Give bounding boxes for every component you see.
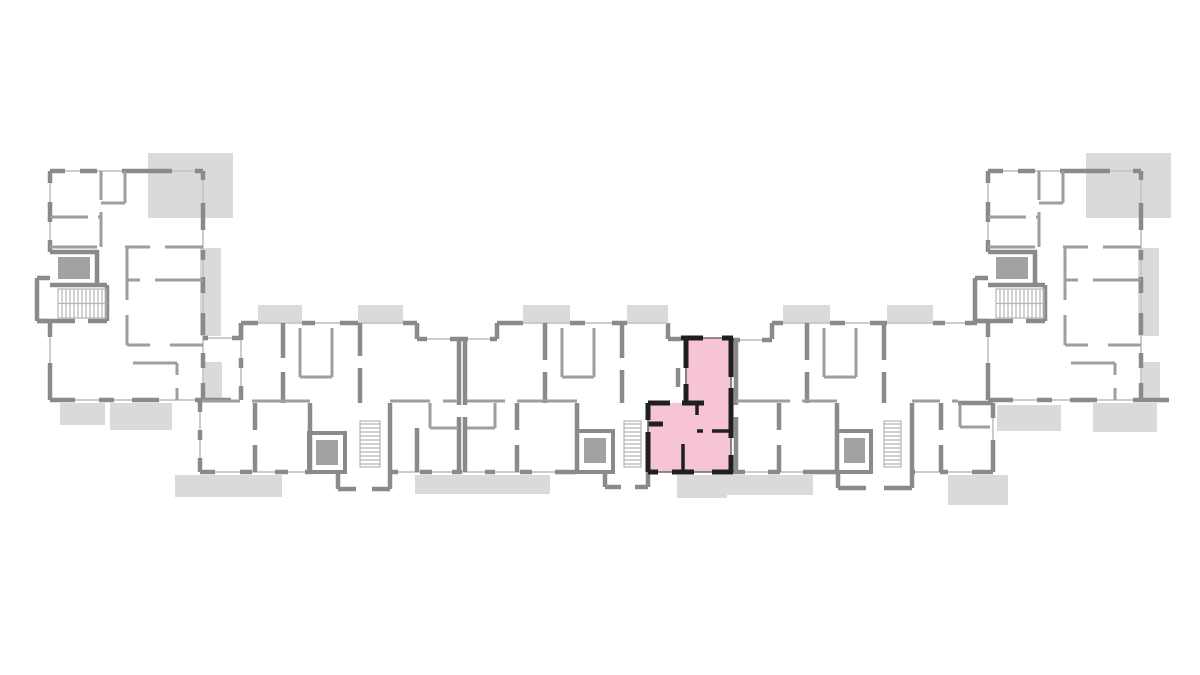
balcony <box>887 305 933 323</box>
highlighted-unit[interactable] <box>648 338 733 472</box>
stairs-icon <box>884 421 901 467</box>
terrace-highlighted-unit <box>677 475 727 498</box>
central-bar <box>200 323 993 489</box>
balcony <box>258 305 302 323</box>
bar-top-walls <box>241 323 977 340</box>
stair-core-right <box>837 421 912 488</box>
entrance-porch-walls <box>338 472 390 489</box>
terrace <box>727 475 813 495</box>
balcony <box>523 305 570 323</box>
floor-plan-page <box>0 0 1200 675</box>
entrance-porch-walls <box>605 472 648 487</box>
right-wing <box>975 153 1171 400</box>
terrace <box>948 475 1008 505</box>
elevator-icon <box>315 439 339 466</box>
terrace <box>175 475 282 497</box>
stair-core-middle <box>577 421 648 487</box>
wing-bottom-terrace <box>997 405 1061 431</box>
balcony <box>627 305 668 323</box>
wing-bottom-terrace <box>110 403 172 430</box>
wing-bottom-terrace <box>60 403 105 425</box>
entrance-porch-walls <box>838 472 912 488</box>
left-wing <box>37 153 241 400</box>
bar-top-windows <box>258 323 965 340</box>
floor-plan-svg <box>0 0 1200 675</box>
elevator-icon <box>583 437 607 464</box>
elevator-icon <box>843 437 866 464</box>
balcony <box>358 305 403 323</box>
stairs-icon <box>360 421 380 467</box>
stairs-icon <box>624 421 641 467</box>
bar-corridor-walls <box>202 401 990 427</box>
wing-bottom-terrace <box>1093 403 1157 432</box>
balcony <box>783 305 830 323</box>
stair-core-left <box>309 421 390 489</box>
terrace <box>415 475 550 494</box>
